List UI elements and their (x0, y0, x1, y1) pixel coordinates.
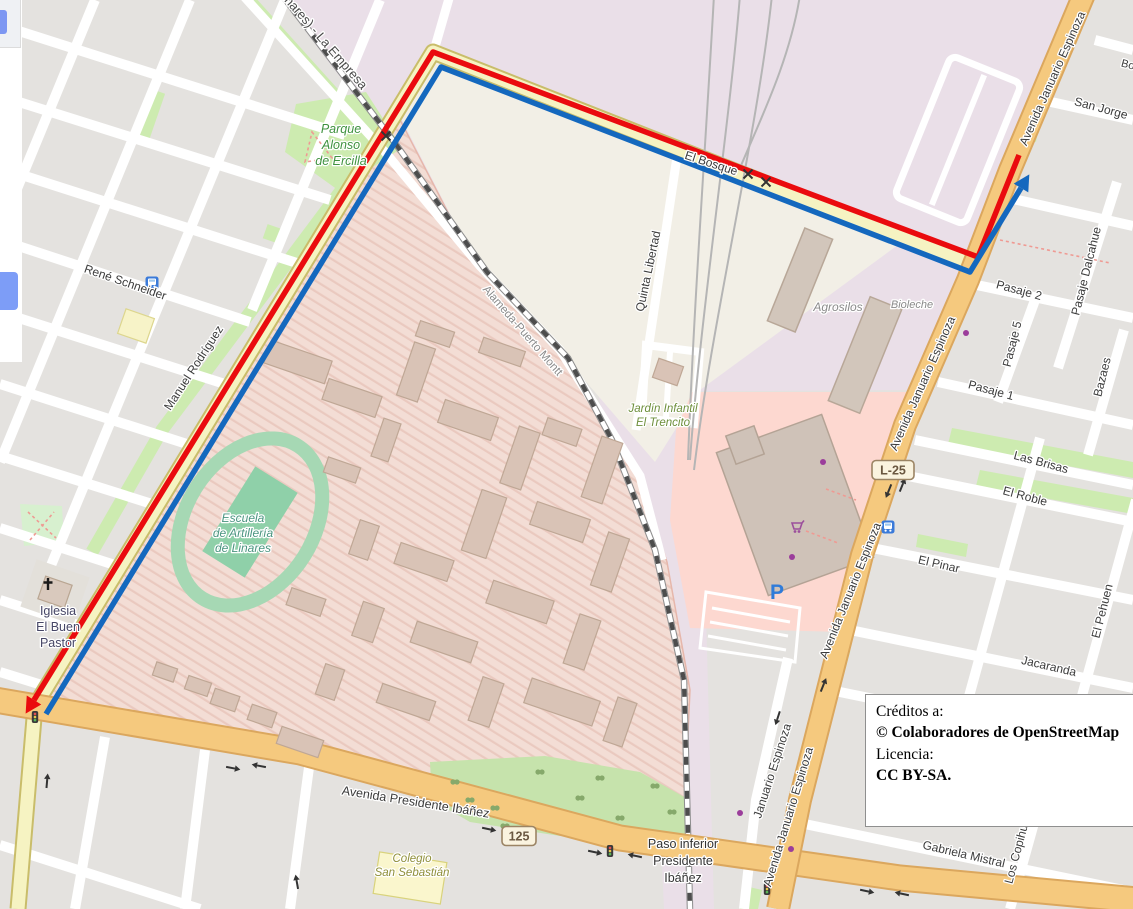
traffic-light-icon (607, 845, 613, 857)
credits-line3: Licencia: (876, 744, 1123, 765)
left-ui-button-top[interactable] (0, 10, 7, 34)
poi-bioleche: Bioleche (891, 299, 933, 311)
map-screenshot: P 125L-25 (Linares) - La EmpresaRené Sch… (0, 0, 1133, 909)
parking-icon: P (770, 581, 784, 604)
credits-line4: CC BY-SA. (876, 765, 1123, 786)
poi-dot (737, 810, 743, 816)
credits-line2: © Colaboradores de OpenStreetMap (876, 722, 1123, 743)
left-ui-strip (0, 0, 22, 362)
left-ui-button-bottom[interactable] (0, 272, 18, 310)
poi-dot (789, 554, 795, 560)
credits-box: Créditos a: © Colaboradores de OpenStree… (865, 694, 1133, 827)
poi-agrosilos: Agrosilos (812, 300, 862, 314)
route-shield-l-25: L-25 (872, 461, 914, 480)
credits-line1: Créditos a: (876, 701, 1123, 722)
route-shield-125: 125 (502, 827, 536, 846)
poi-dot (788, 846, 794, 852)
svg-text:P: P (770, 581, 784, 604)
traffic-light-icon (32, 711, 38, 723)
poi-dot (963, 330, 969, 336)
park-alonso-de-ercilla: ParqueAlonsode Ercilla (315, 122, 366, 168)
poi-iglesia-buen-pastor: IglesiaEl BuenPastor (36, 604, 80, 650)
svg-text:125: 125 (509, 830, 530, 844)
svg-text:L-25: L-25 (880, 464, 906, 478)
poi-dot (820, 459, 826, 465)
